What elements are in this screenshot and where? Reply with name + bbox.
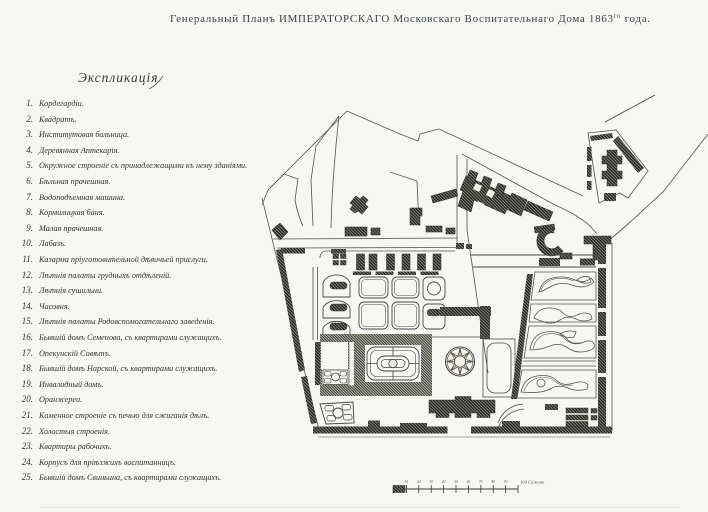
svg-text:30: 30 xyxy=(429,480,433,484)
svg-text:100 Саженъ: 100 Саженъ xyxy=(520,480,545,485)
svg-text:10: 10 xyxy=(404,480,408,484)
svg-text:40: 40 xyxy=(442,480,446,484)
svg-text:70: 70 xyxy=(479,480,483,484)
svg-text:20: 20 xyxy=(417,480,421,484)
svg-text:90: 90 xyxy=(504,480,508,484)
svg-text:60: 60 xyxy=(467,480,471,484)
svg-text:80: 80 xyxy=(491,480,495,484)
svg-text:50: 50 xyxy=(454,480,458,484)
